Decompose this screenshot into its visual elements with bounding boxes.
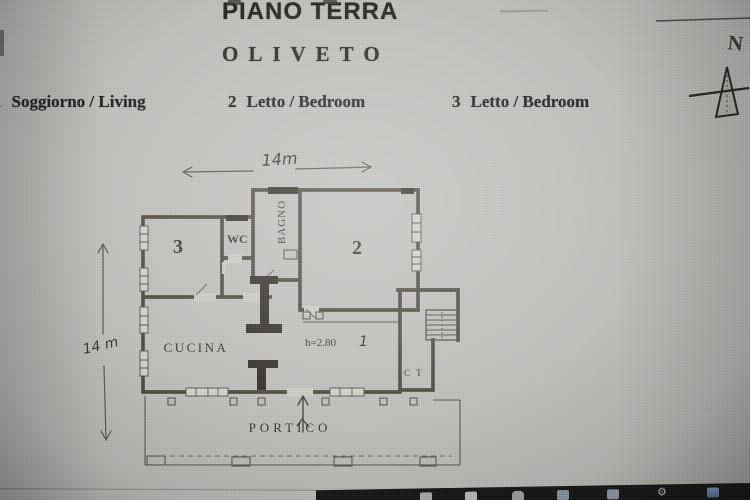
legend-number: 3 xyxy=(452,92,461,111)
photo-artifact xyxy=(323,0,337,4)
legend-number: 1 xyxy=(0,92,2,111)
page-title: PIANO TERRA xyxy=(222,0,398,26)
wc-label: WC xyxy=(227,232,248,246)
folder-icon[interactable] xyxy=(512,491,524,500)
compass-north-label: N xyxy=(726,30,744,56)
legend-item-living: 1Soggiorno / Living xyxy=(0,92,146,112)
ct-label: C T xyxy=(404,368,424,378)
floor-plan-drawing: 14m 14 m 3 WC BAGNO 2 CUCINA h=2.80 1 C … xyxy=(0,0,750,500)
app-store-icon[interactable] xyxy=(707,488,719,498)
living-number-label: 1 xyxy=(359,334,368,350)
document-icon[interactable] xyxy=(465,492,477,500)
height-dimension-label: 14 m xyxy=(81,334,120,358)
room3-label: 3 xyxy=(173,236,183,258)
photo-artifact xyxy=(228,0,241,5)
photo-artifact xyxy=(0,30,4,56)
staircase xyxy=(426,310,458,340)
portico-label: PORTICO xyxy=(249,420,332,435)
window-icon[interactable] xyxy=(420,492,432,500)
north-compass-icon: N xyxy=(656,18,750,117)
width-dimension-label: 14m xyxy=(261,149,298,170)
photographed-screen: 14m 14 m 3 WC BAGNO 2 CUCINA h=2.80 1 C … xyxy=(0,0,750,500)
cucina-label: CUCINA xyxy=(164,340,229,355)
legend-item-bedroom2: 2Letto / Bedroom xyxy=(228,92,365,112)
living-height-note: h=2.80 xyxy=(305,337,336,349)
photos-icon[interactable] xyxy=(607,489,619,499)
legend-label: Letto / Bedroom xyxy=(247,92,366,111)
legend-label: Soggiorno / Living xyxy=(12,92,146,111)
legend-number: 2 xyxy=(228,92,237,111)
mail-icon[interactable] xyxy=(557,490,569,500)
property-name: OLIVETO xyxy=(222,42,390,67)
legend-item-bedroom3: 3Letto / Bedroom xyxy=(452,92,589,112)
legend-label: Letto / Bedroom xyxy=(471,92,590,111)
bagno-label: BAGNO xyxy=(276,200,288,244)
room2-label: 2 xyxy=(352,237,362,259)
settings-gear-icon[interactable]: ⚙ xyxy=(657,487,669,497)
